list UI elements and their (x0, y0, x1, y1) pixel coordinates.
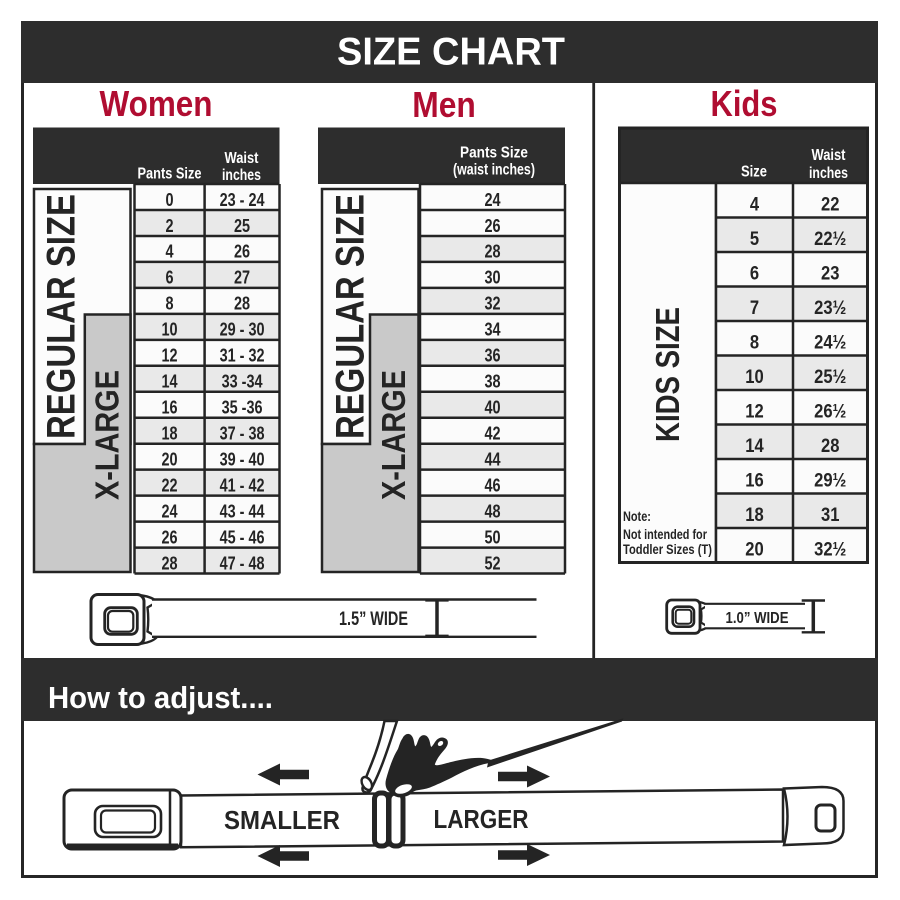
svg-text:42: 42 (484, 423, 500, 444)
svg-text:X-LARGE: X-LARGE (375, 370, 412, 500)
svg-text:14: 14 (162, 371, 179, 392)
svg-text:5: 5 (750, 228, 759, 250)
svg-text:2: 2 (166, 215, 174, 236)
svg-text:41 - 42: 41 - 42 (220, 475, 265, 496)
svg-text:48: 48 (484, 501, 500, 522)
svg-text:23: 23 (821, 262, 839, 284)
svg-text:Women: Women (100, 84, 213, 124)
svg-text:32: 32 (484, 293, 500, 314)
svg-text:10: 10 (162, 319, 178, 340)
svg-text:26: 26 (484, 215, 500, 236)
svg-text:23½: 23½ (814, 297, 846, 319)
svg-text:1.5” WIDE: 1.5” WIDE (339, 608, 408, 629)
svg-text:28: 28 (484, 241, 500, 262)
svg-text:30: 30 (484, 267, 500, 288)
svg-text:X-LARGE: X-LARGE (89, 370, 126, 500)
svg-text:36: 36 (484, 345, 500, 366)
svg-text:Note:: Note: (623, 509, 651, 524)
svg-text:LARGER: LARGER (434, 806, 529, 835)
svg-text:4: 4 (750, 193, 759, 215)
svg-text:6: 6 (166, 267, 174, 288)
svg-text:18: 18 (745, 504, 763, 526)
svg-text:6: 6 (750, 262, 759, 284)
svg-text:39 - 40: 39 - 40 (220, 449, 265, 470)
svg-text:inches: inches (809, 164, 848, 182)
svg-text:REGULAR SIZE: REGULAR SIZE (328, 194, 373, 439)
svg-text:47 - 48: 47 - 48 (220, 553, 265, 574)
svg-text:14: 14 (745, 435, 763, 457)
svg-text:8: 8 (750, 331, 759, 353)
svg-text:27: 27 (234, 267, 250, 288)
svg-text:26½: 26½ (814, 400, 846, 422)
svg-text:12: 12 (745, 400, 763, 422)
svg-text:inches: inches (222, 166, 261, 184)
svg-text:35 -36: 35 -36 (222, 397, 263, 418)
svg-text:Not intended for: Not intended for (623, 527, 707, 542)
svg-text:Size: Size (741, 163, 767, 180)
svg-text:12: 12 (162, 345, 178, 366)
svg-text:23 - 24: 23 - 24 (220, 189, 266, 210)
svg-text:26: 26 (162, 527, 178, 548)
svg-text:REGULAR SIZE: REGULAR SIZE (39, 194, 84, 439)
svg-text:24: 24 (162, 501, 179, 522)
svg-text:22½: 22½ (814, 228, 846, 250)
svg-text:0: 0 (166, 189, 174, 210)
svg-text:43 - 44: 43 - 44 (220, 501, 266, 522)
svg-text:How to adjust....: How to adjust.... (48, 681, 273, 715)
svg-text:Kids: Kids (711, 85, 778, 125)
svg-text:Waist: Waist (812, 147, 846, 164)
svg-text:16: 16 (162, 397, 178, 418)
svg-text:1.0” WIDE: 1.0” WIDE (726, 610, 789, 627)
svg-text:18: 18 (162, 423, 178, 444)
svg-text:28: 28 (162, 553, 178, 574)
svg-text:46: 46 (484, 475, 500, 496)
svg-text:45 - 46: 45 - 46 (220, 527, 265, 548)
svg-text:22: 22 (162, 475, 178, 496)
svg-text:28: 28 (234, 293, 250, 314)
svg-text:33 -34: 33 -34 (222, 371, 264, 392)
svg-text:25½: 25½ (814, 366, 846, 388)
svg-text:16: 16 (745, 469, 763, 491)
svg-text:SIZE CHART: SIZE CHART (337, 30, 565, 74)
svg-text:10: 10 (745, 366, 763, 388)
svg-text:32½: 32½ (814, 538, 846, 560)
svg-text:50: 50 (484, 527, 500, 548)
svg-text:24: 24 (484, 189, 501, 210)
svg-text:37 - 38: 37 - 38 (220, 423, 265, 444)
svg-text:40: 40 (484, 397, 500, 418)
svg-text:22: 22 (821, 193, 839, 215)
svg-text:Pants Size: Pants Size (138, 165, 202, 182)
svg-text:Men: Men (412, 85, 476, 125)
svg-text:20: 20 (162, 449, 178, 470)
svg-text:52: 52 (484, 553, 500, 574)
svg-text:KIDS SIZE: KIDS SIZE (650, 307, 687, 442)
svg-text:(waist inches): (waist inches) (453, 160, 535, 178)
svg-text:SMALLER: SMALLER (224, 806, 340, 835)
svg-text:29 - 30: 29 - 30 (220, 319, 265, 340)
svg-text:26: 26 (234, 241, 250, 262)
svg-text:24½: 24½ (814, 331, 846, 353)
svg-text:44: 44 (484, 449, 501, 470)
svg-text:31: 31 (821, 504, 839, 526)
svg-text:25: 25 (234, 215, 250, 236)
svg-text:31 - 32: 31 - 32 (220, 345, 265, 366)
svg-text:20: 20 (745, 538, 763, 560)
svg-text:34: 34 (484, 319, 501, 340)
svg-text:4: 4 (166, 241, 175, 262)
svg-text:28: 28 (821, 435, 839, 457)
svg-text:Toddler Sizes (T): Toddler Sizes (T) (623, 542, 712, 557)
svg-text:7: 7 (750, 297, 759, 319)
svg-text:29½: 29½ (814, 469, 846, 491)
svg-text:38: 38 (484, 371, 500, 392)
svg-text:8: 8 (166, 293, 174, 314)
